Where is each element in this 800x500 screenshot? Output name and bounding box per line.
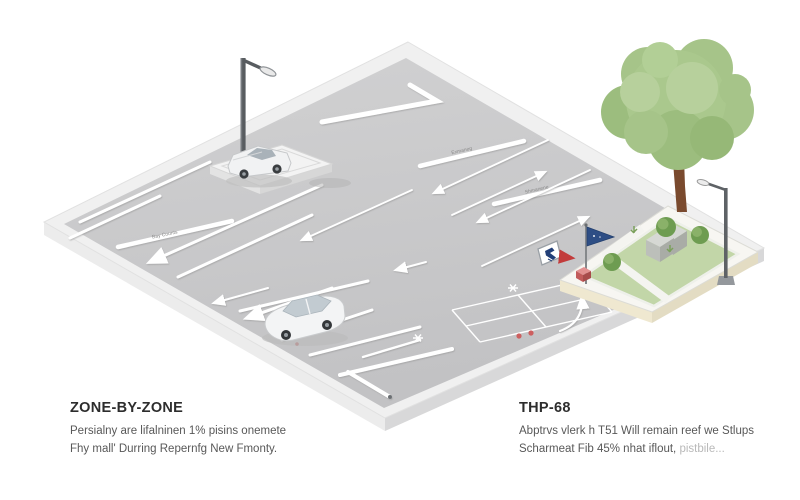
caption-body-line: Fhy mall' Durring Repernfg New Fmonty. bbox=[70, 441, 470, 457]
bush bbox=[603, 253, 621, 271]
sedan-hub bbox=[325, 323, 329, 327]
truck-hub bbox=[275, 167, 279, 171]
caption-zone-by-zone: ZONE-BY-ZONE Persialny are lifalninen 1%… bbox=[70, 400, 470, 460]
red-dot-marker bbox=[516, 333, 521, 338]
tree-canopy bbox=[601, 39, 754, 170]
bush bbox=[656, 217, 676, 237]
lamp-pole bbox=[724, 188, 728, 278]
survey-point bbox=[388, 395, 392, 399]
flag-dot bbox=[599, 236, 601, 238]
lamp-head bbox=[697, 178, 710, 186]
caption-body-line: Scharmeat Fib 45% nhat iflout, pistbile.… bbox=[519, 441, 800, 457]
red-arrow-icon bbox=[563, 257, 572, 258]
caption-thp-68: THP-68 Abptrvs vlerk h T51 Will remain r… bbox=[519, 400, 800, 460]
caption-body-line: Abptrvs vlerk h T51 Will remain reef we … bbox=[519, 423, 800, 439]
illustration-canvas: Bay Counts Exmaneg Shmanene bbox=[0, 0, 800, 500]
truck-hub bbox=[242, 172, 246, 176]
caption-heading: ZONE-BY-ZONE bbox=[70, 400, 470, 416]
truck-shadow bbox=[226, 175, 292, 188]
caption-body-line: Persialny are lifalninen 1% pisins oneme… bbox=[70, 423, 470, 439]
light-pole-highlight bbox=[241, 58, 243, 164]
light-head bbox=[259, 65, 277, 78]
caption-body-segment-light: pistbile... bbox=[676, 443, 725, 455]
cast-shadow bbox=[309, 178, 351, 188]
bush bbox=[691, 226, 709, 244]
sedan-hub bbox=[284, 333, 288, 337]
caption-heading: THP-68 bbox=[519, 400, 800, 416]
flag-finial bbox=[584, 223, 587, 226]
flag-dot bbox=[593, 235, 595, 237]
caption-body-segment: Scharmeat Fib 45% nhat iflout, bbox=[519, 443, 676, 455]
red-dot-marker bbox=[528, 330, 533, 335]
